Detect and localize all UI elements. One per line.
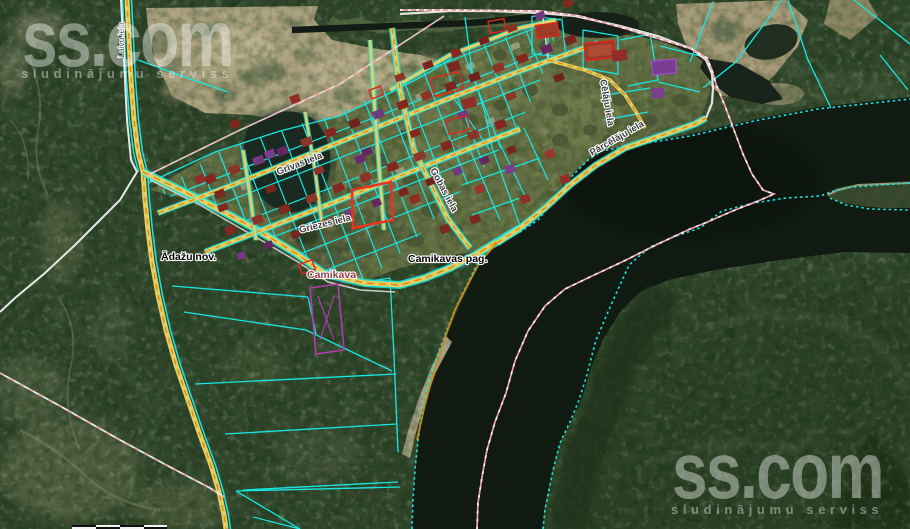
svg-text:Camikava: Camikava xyxy=(307,269,356,281)
svg-text:sludinājumu serviss: sludinājumu serviss xyxy=(21,66,233,81)
svg-text:sludinājumu serviss: sludinājumu serviss xyxy=(671,502,883,517)
svg-text:Camikavas pag.: Camikavas pag. xyxy=(408,253,487,265)
svg-text:Ādažu nov.: Ādažu nov. xyxy=(161,251,216,263)
